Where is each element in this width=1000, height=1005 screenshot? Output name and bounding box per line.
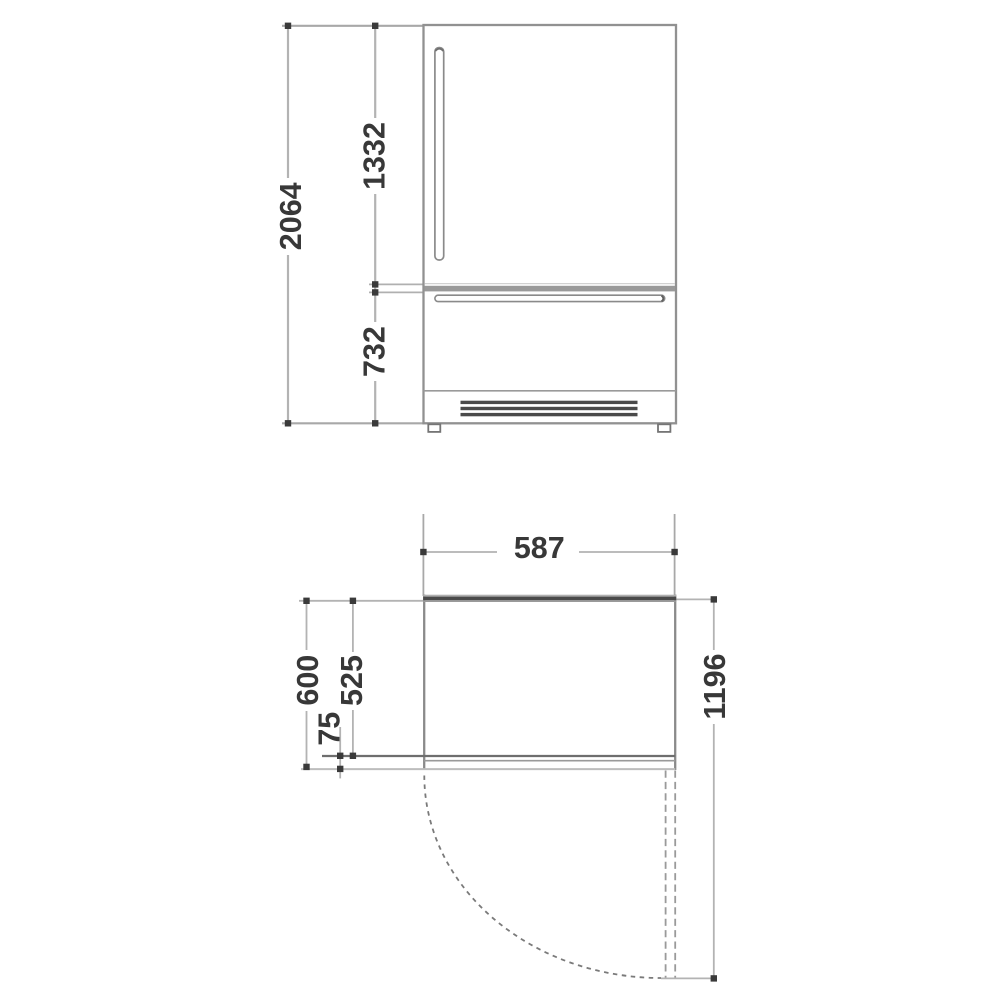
svg-text:1196: 1196 — [698, 654, 732, 720]
svg-text:525: 525 — [335, 655, 369, 706]
svg-text:1332: 1332 — [358, 122, 392, 190]
svg-text:587: 587 — [514, 531, 565, 565]
svg-text:600: 600 — [291, 655, 325, 706]
svg-text:732: 732 — [358, 326, 392, 377]
svg-text:75: 75 — [312, 712, 346, 746]
svg-text:2064: 2064 — [274, 182, 308, 250]
